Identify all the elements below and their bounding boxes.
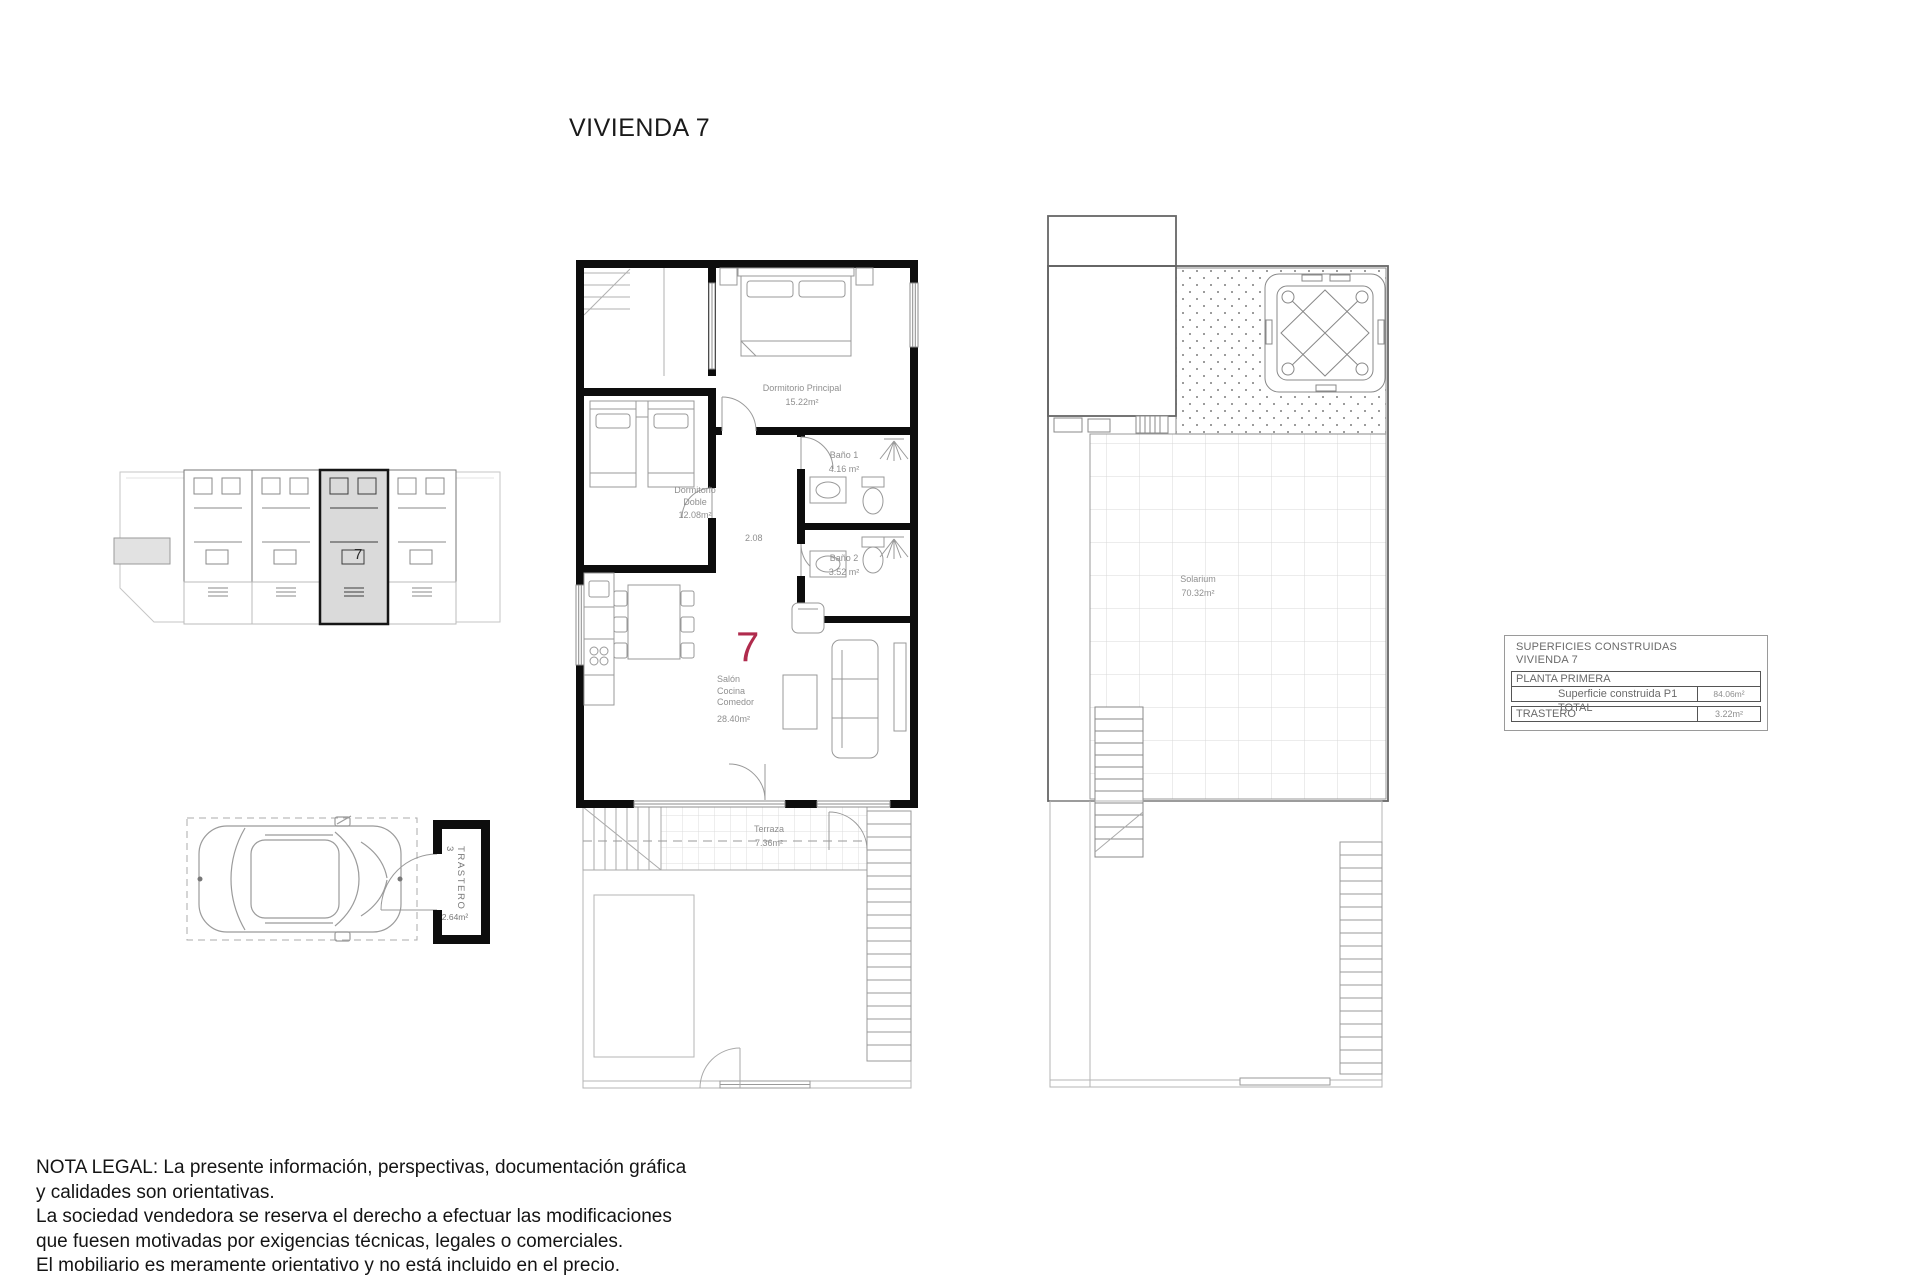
roof-utilities bbox=[1054, 416, 1168, 433]
hall-stairs bbox=[584, 268, 664, 376]
room-label-bano-2: Baño 2 3.52 m² bbox=[812, 553, 876, 578]
trastero-label: TRASTERO 3 bbox=[444, 846, 466, 916]
plan-sheet: VIVIENDA 7 7 bbox=[0, 0, 1920, 1280]
planta-primera-box: PLANTA PRIMERA Superficie construida P1 … bbox=[1511, 671, 1761, 702]
bed-principal bbox=[720, 268, 873, 356]
solarium-plan-drawing bbox=[1040, 212, 1395, 1095]
site-annex bbox=[114, 538, 170, 564]
living-furniture bbox=[783, 603, 906, 758]
car bbox=[198, 816, 403, 941]
jacuzzi bbox=[1265, 274, 1385, 392]
areas-table: SUPERFICIES CONSTRUIDAS VIVIENDA 7 PLANT… bbox=[1504, 635, 1768, 731]
legal-note: NOTA LEGAL: La presente información, per… bbox=[36, 1156, 756, 1279]
room-label-salon: Salón Cocina Comedor 28.40m² bbox=[717, 674, 797, 725]
solarium-stairs bbox=[1095, 707, 1143, 857]
ground-level-outline bbox=[583, 870, 911, 1088]
dining-table bbox=[614, 585, 694, 659]
room-label-dormitorio-doble: Dormitorio Doble 12.08m² bbox=[655, 485, 735, 522]
dimension-label: 2.08 bbox=[745, 533, 763, 543]
trastero-area: 2.64m² bbox=[432, 912, 478, 922]
room-label-solarium: Solarium 70.32m² bbox=[1156, 574, 1240, 599]
room-label-bano-1: Baño 1 4.16 m² bbox=[812, 450, 876, 475]
kitchen bbox=[584, 573, 614, 705]
exterior-stairs bbox=[867, 811, 911, 1061]
doors bbox=[682, 397, 833, 800]
key-plan-unit-number: 7 bbox=[354, 546, 362, 563]
trastero-box: TRASTERO 3.22m² bbox=[1511, 706, 1761, 722]
unit-number-red: 7 bbox=[736, 625, 759, 669]
areas-table-header: SUPERFICIES CONSTRUIDAS VIVIENDA 7 bbox=[1505, 636, 1767, 671]
planta-primera-row: PLANTA PRIMERA bbox=[1512, 672, 1760, 687]
beds-double-room bbox=[590, 401, 694, 487]
trastero-row: TRASTERO 3.22m² bbox=[1512, 707, 1760, 721]
room-label-dormitorio-principal: Dormitorio Principal 15.22m² bbox=[752, 383, 852, 408]
trastero-drawing bbox=[375, 812, 495, 952]
page-title: VIVIENDA 7 bbox=[569, 114, 710, 143]
exterior-stairs-solarium bbox=[1340, 842, 1382, 1074]
trastero-door bbox=[381, 854, 437, 910]
total-row: Superficie construida P1 TOTAL 84.06m² bbox=[1512, 687, 1760, 701]
room-label-terraza: Terraza 7.36m² bbox=[733, 824, 805, 849]
key-plan-drawing bbox=[112, 450, 507, 645]
